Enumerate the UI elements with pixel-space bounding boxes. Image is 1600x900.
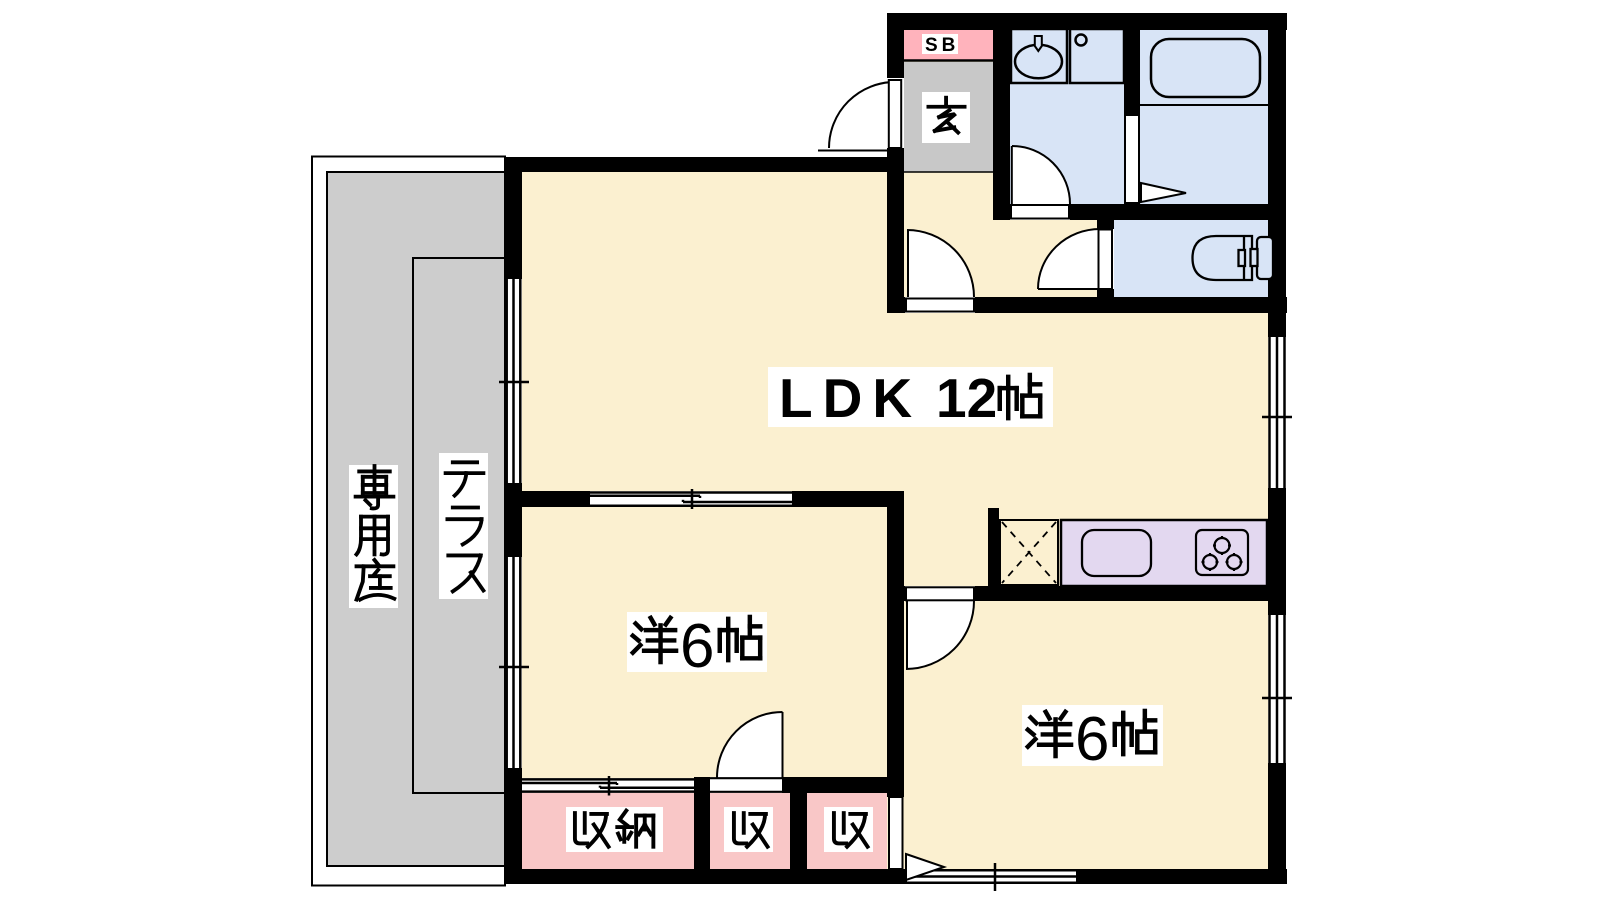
svg-text:6: 6 [680, 612, 714, 681]
svg-text:LDK: LDK [779, 367, 922, 429]
svg-text:SB: SB [925, 35, 959, 56]
svg-text:12: 12 [936, 367, 997, 429]
svg-text:6: 6 [1075, 705, 1109, 774]
